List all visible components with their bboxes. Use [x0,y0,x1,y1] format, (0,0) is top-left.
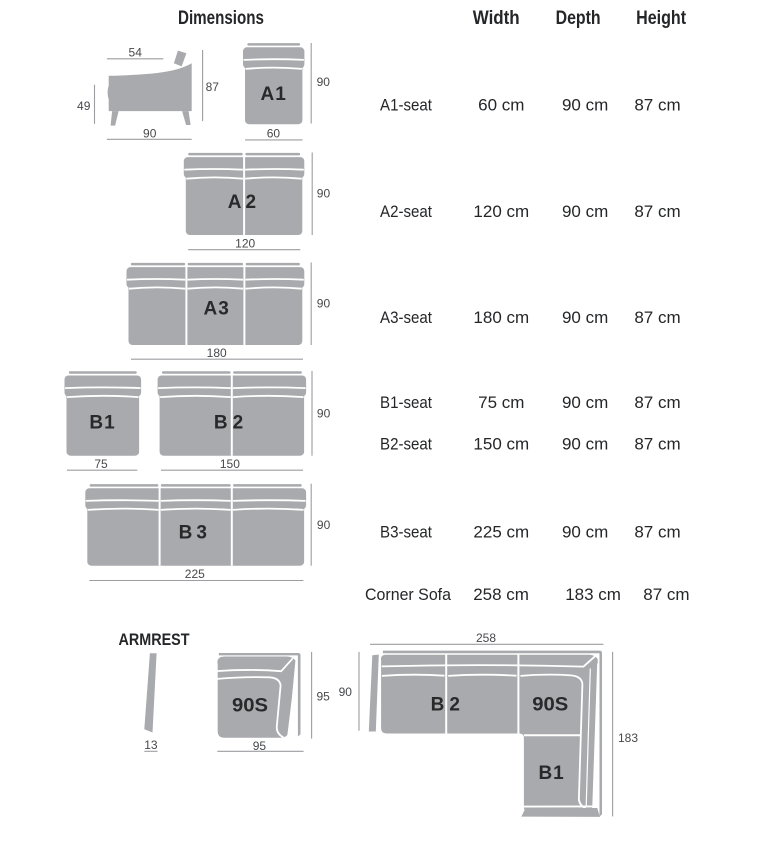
svg-text:75: 75 [94,457,108,471]
svg-text:49: 49 [77,99,91,113]
svg-text:90 cm: 90 cm [562,96,608,115]
svg-text:B1: B1 [89,413,115,434]
svg-text:95: 95 [253,739,267,753]
svg-text:54: 54 [129,46,143,60]
svg-text:A3: A3 [204,299,230,320]
svg-text:120 cm: 120 cm [473,202,529,221]
svg-text:B3-seat: B3-seat [380,522,432,541]
svg-text:150: 150 [220,457,240,471]
svg-text:87 cm: 87 cm [634,96,680,115]
svg-text:180 cm: 180 cm [473,308,529,327]
svg-text:90 cm: 90 cm [562,393,608,412]
svg-text:B1: B1 [538,763,564,784]
svg-text:A2-seat: A2-seat [380,202,432,221]
svg-text:B2: B2 [214,413,248,434]
svg-text:Dimensions: Dimensions [178,8,264,29]
svg-text:B2: B2 [431,695,465,716]
svg-text:87: 87 [206,80,220,94]
svg-text:87 cm: 87 cm [643,585,689,604]
svg-text:90 cm: 90 cm [562,435,608,454]
svg-text:90: 90 [339,685,353,699]
svg-text:90: 90 [317,296,331,310]
svg-text:Depth: Depth [556,8,601,29]
svg-text:Height: Height [636,8,687,29]
svg-text:258: 258 [476,631,496,645]
svg-text:225 cm: 225 cm [473,522,529,541]
svg-text:90 cm: 90 cm [562,522,608,541]
svg-text:90: 90 [317,407,331,421]
svg-text:90S: 90S [232,695,268,716]
svg-text:ARMREST: ARMREST [119,630,191,649]
svg-text:87 cm: 87 cm [634,202,680,221]
svg-text:Width: Width [473,8,520,29]
svg-text:225: 225 [185,567,205,581]
svg-text:B1-seat: B1-seat [380,393,432,412]
svg-text:B2-seat: B2-seat [380,435,432,454]
svg-text:87 cm: 87 cm [634,522,680,541]
svg-text:150 cm: 150 cm [473,435,529,454]
svg-text:120: 120 [235,236,255,250]
svg-text:90: 90 [317,518,331,532]
svg-text:Corner Sofa: Corner Sofa [365,585,451,604]
svg-text:13: 13 [144,738,158,752]
svg-text:87 cm: 87 cm [634,308,680,327]
svg-text:258 cm: 258 cm [473,585,529,604]
svg-text:90: 90 [317,75,331,89]
svg-text:183 cm: 183 cm [565,585,621,604]
svg-text:183: 183 [618,731,638,745]
svg-text:90 cm: 90 cm [562,202,608,221]
svg-text:90: 90 [317,186,331,200]
svg-text:180: 180 [207,346,227,360]
svg-text:A2: A2 [228,192,260,213]
svg-text:A3-seat: A3-seat [380,308,432,327]
svg-text:90S: 90S [532,695,568,716]
svg-text:90: 90 [143,126,157,140]
svg-text:60 cm: 60 cm [478,96,524,115]
svg-text:A1: A1 [261,84,287,105]
svg-text:A1-seat: A1-seat [380,96,432,115]
svg-text:87 cm: 87 cm [634,435,680,454]
svg-text:60: 60 [267,127,281,141]
svg-text:75 cm: 75 cm [478,393,524,412]
svg-text:87 cm: 87 cm [634,393,680,412]
svg-text:95: 95 [317,689,331,703]
svg-text:90 cm: 90 cm [562,308,608,327]
svg-text:B3: B3 [179,523,211,544]
